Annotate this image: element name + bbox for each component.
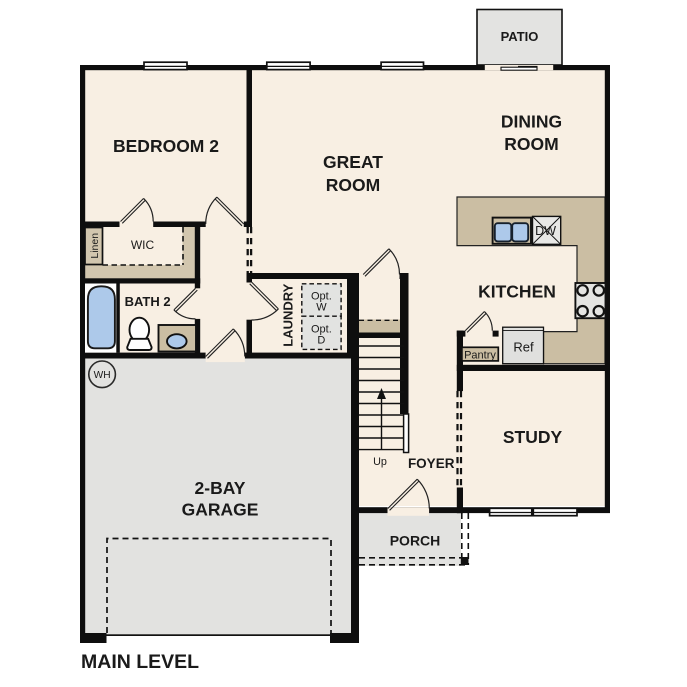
svg-text:MAIN LEVEL: MAIN LEVEL (81, 651, 199, 673)
svg-text:GARAGE: GARAGE (182, 500, 259, 520)
svg-text:DINING: DINING (501, 112, 562, 132)
svg-text:ROOM: ROOM (326, 175, 380, 195)
svg-text:2-BAY: 2-BAY (195, 478, 246, 498)
svg-text:GREAT: GREAT (323, 152, 383, 172)
svg-text:Linen: Linen (89, 233, 101, 259)
svg-text:D: D (317, 334, 325, 346)
svg-text:BEDROOM 2: BEDROOM 2 (113, 136, 219, 156)
svg-text:Pantry: Pantry (464, 350, 496, 362)
svg-text:WH: WH (94, 370, 111, 381)
svg-text:BATH 2: BATH 2 (125, 294, 171, 309)
svg-text:KITCHEN: KITCHEN (478, 282, 556, 302)
svg-text:WIC: WIC (131, 238, 155, 252)
svg-text:Up: Up (373, 456, 387, 468)
svg-text:W: W (316, 301, 327, 313)
svg-text:DW: DW (535, 224, 556, 238)
svg-text:ROOM: ROOM (504, 134, 558, 154)
svg-text:PATIO: PATIO (501, 29, 539, 44)
svg-text:LAUNDRY: LAUNDRY (281, 283, 296, 346)
svg-text:Ref: Ref (513, 340, 534, 355)
svg-text:PORCH: PORCH (390, 533, 441, 549)
svg-text:STUDY: STUDY (503, 427, 563, 447)
svg-text:FOYER: FOYER (408, 456, 455, 471)
